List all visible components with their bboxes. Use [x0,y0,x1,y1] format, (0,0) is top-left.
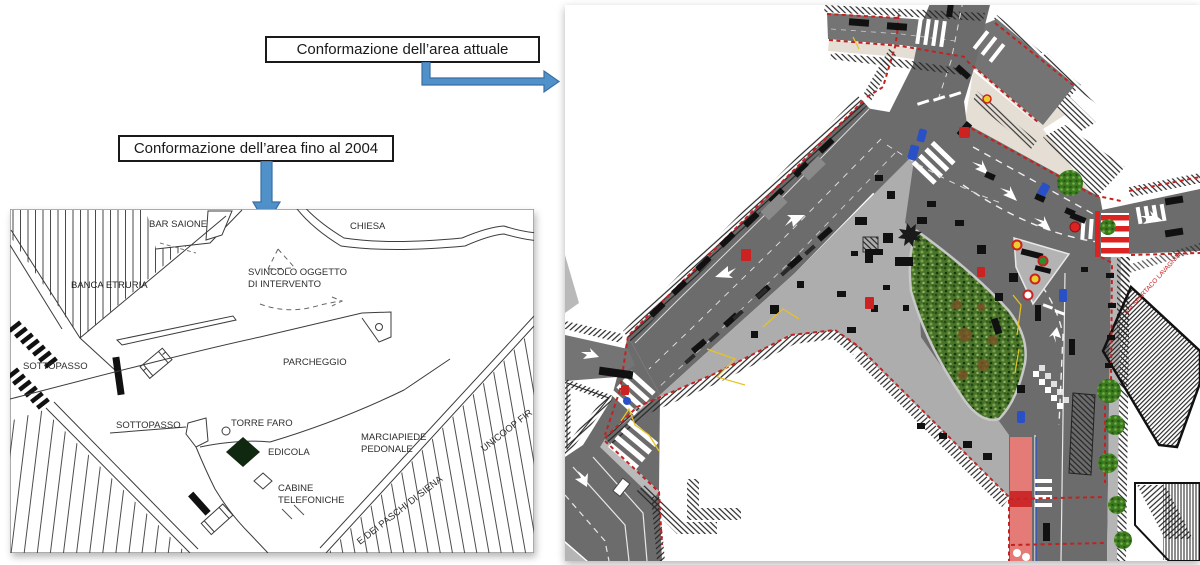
svg-text:BAR SAIONE: BAR SAIONE [149,219,207,230]
svg-text:PARCHEGGIO: PARCHEGGIO [283,357,347,368]
svg-text:SVINCOLO OGGETTO: SVINCOLO OGGETTO [248,267,347,278]
svg-text:MARCIAPIEDE: MARCIAPIEDE [361,432,426,443]
svg-text:DI INTERVENTO: DI INTERVENTO [248,279,321,290]
svg-text:PEDONALE: PEDONALE [361,444,413,455]
svg-text:EDICOLA: EDICOLA [268,447,310,458]
svg-text:CABINE: CABINE [278,483,313,494]
svg-text:CHIESA: CHIESA [350,221,386,232]
svg-text:TELEFONICHE: TELEFONICHE [278,495,345,506]
svg-text:SOTTOPASSO: SOTTOPASSO [116,420,181,431]
svg-text:SOTTOPASSO: SOTTOPASSO [23,361,88,372]
svg-text:BANCA ETRURIA: BANCA ETRURIA [71,280,148,291]
svg-text:TORRE FARO: TORRE FARO [231,418,293,429]
